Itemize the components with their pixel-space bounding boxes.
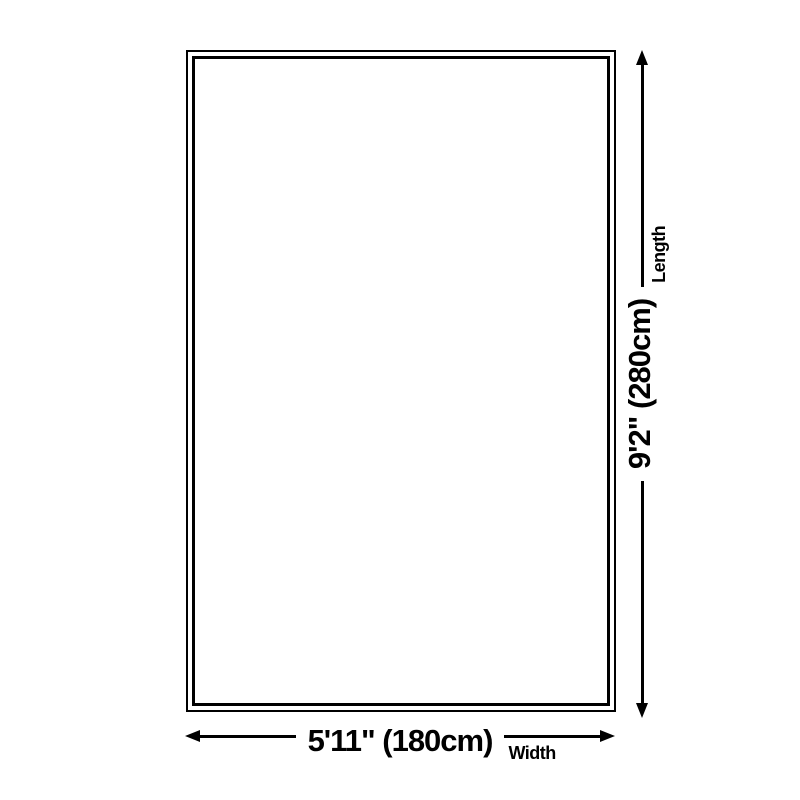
rug-outline (186, 50, 616, 712)
width-dim-line-left (200, 735, 296, 738)
width-dim-line-right: Width (504, 735, 600, 738)
width-label: Width (508, 743, 555, 764)
length-label: Length (649, 226, 670, 283)
length-dim-line-upper: Length (641, 65, 644, 287)
width-value: 5'11" (180cm) (308, 723, 493, 759)
rug-dimension-diagram: 5'11" (180cm) Width 9'2" (280cm) Length (0, 0, 800, 800)
rug-inner-border (192, 56, 610, 706)
length-dim-line-lower (641, 481, 644, 703)
arrow-up-icon (636, 50, 648, 65)
arrow-down-icon (636, 703, 648, 718)
length-value: 9'2" (280cm) (622, 299, 658, 469)
width-dimension: 5'11" (180cm) Width (185, 716, 615, 756)
length-dimension: 9'2" (280cm) Length (622, 50, 662, 718)
arrow-right-icon (600, 730, 615, 742)
arrow-left-icon (185, 730, 200, 742)
